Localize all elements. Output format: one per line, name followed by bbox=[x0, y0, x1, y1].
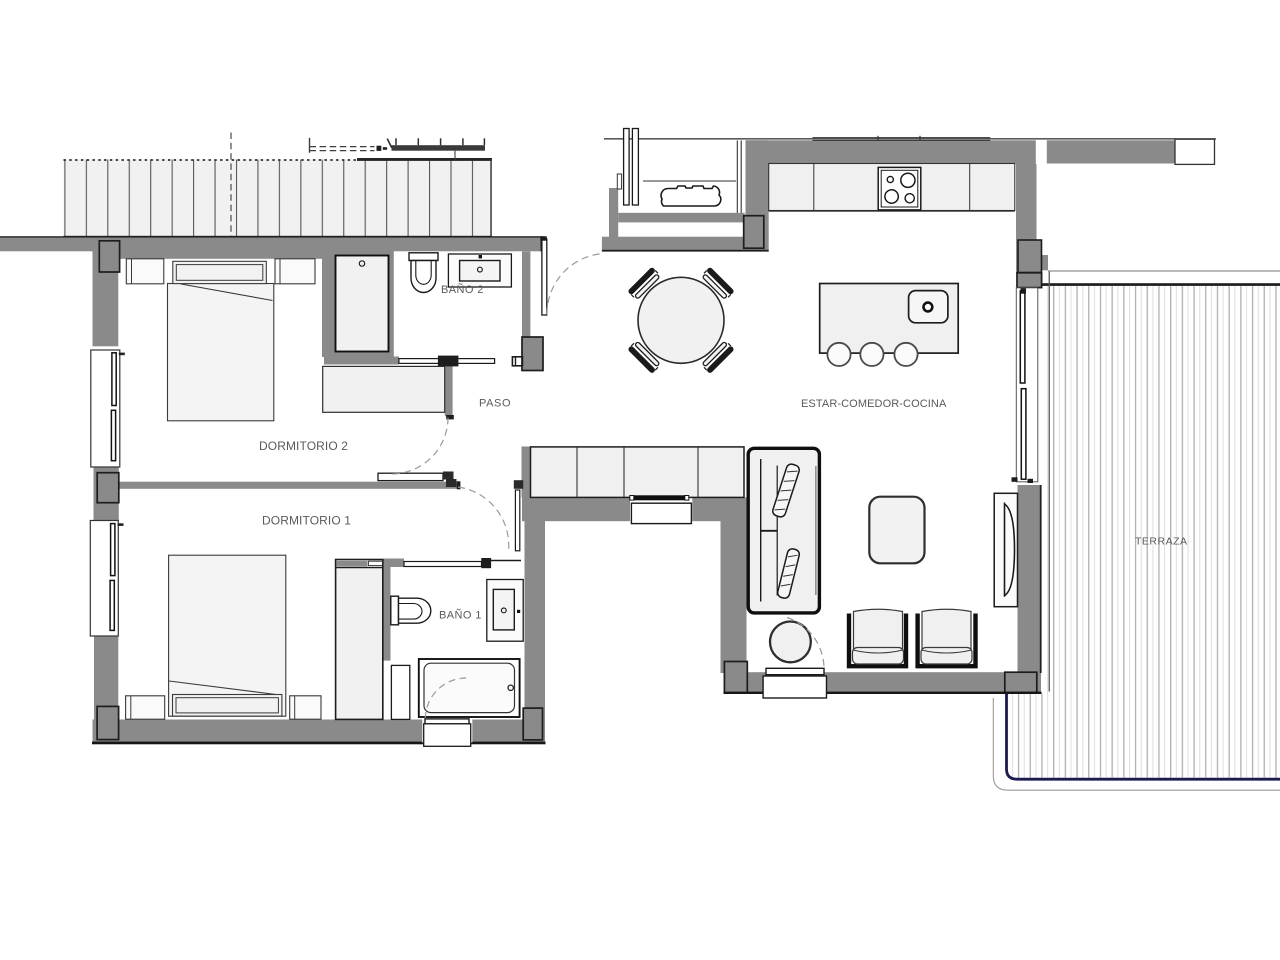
svg-text:PASO: PASO bbox=[479, 398, 511, 410]
svg-text:TERRAZA: TERRAZA bbox=[1135, 536, 1188, 548]
svg-text:ESTAR-COMEDOR-COCINA: ESTAR-COMEDOR-COCINA bbox=[801, 398, 947, 410]
svg-text:DORMITORIO 2: DORMITORIO 2 bbox=[259, 439, 348, 453]
svg-text:DORMITORIO 1: DORMITORIO 1 bbox=[262, 514, 351, 528]
svg-text:BAÑO 1: BAÑO 1 bbox=[439, 609, 482, 622]
svg-text:BAÑO 2: BAÑO 2 bbox=[441, 283, 484, 296]
